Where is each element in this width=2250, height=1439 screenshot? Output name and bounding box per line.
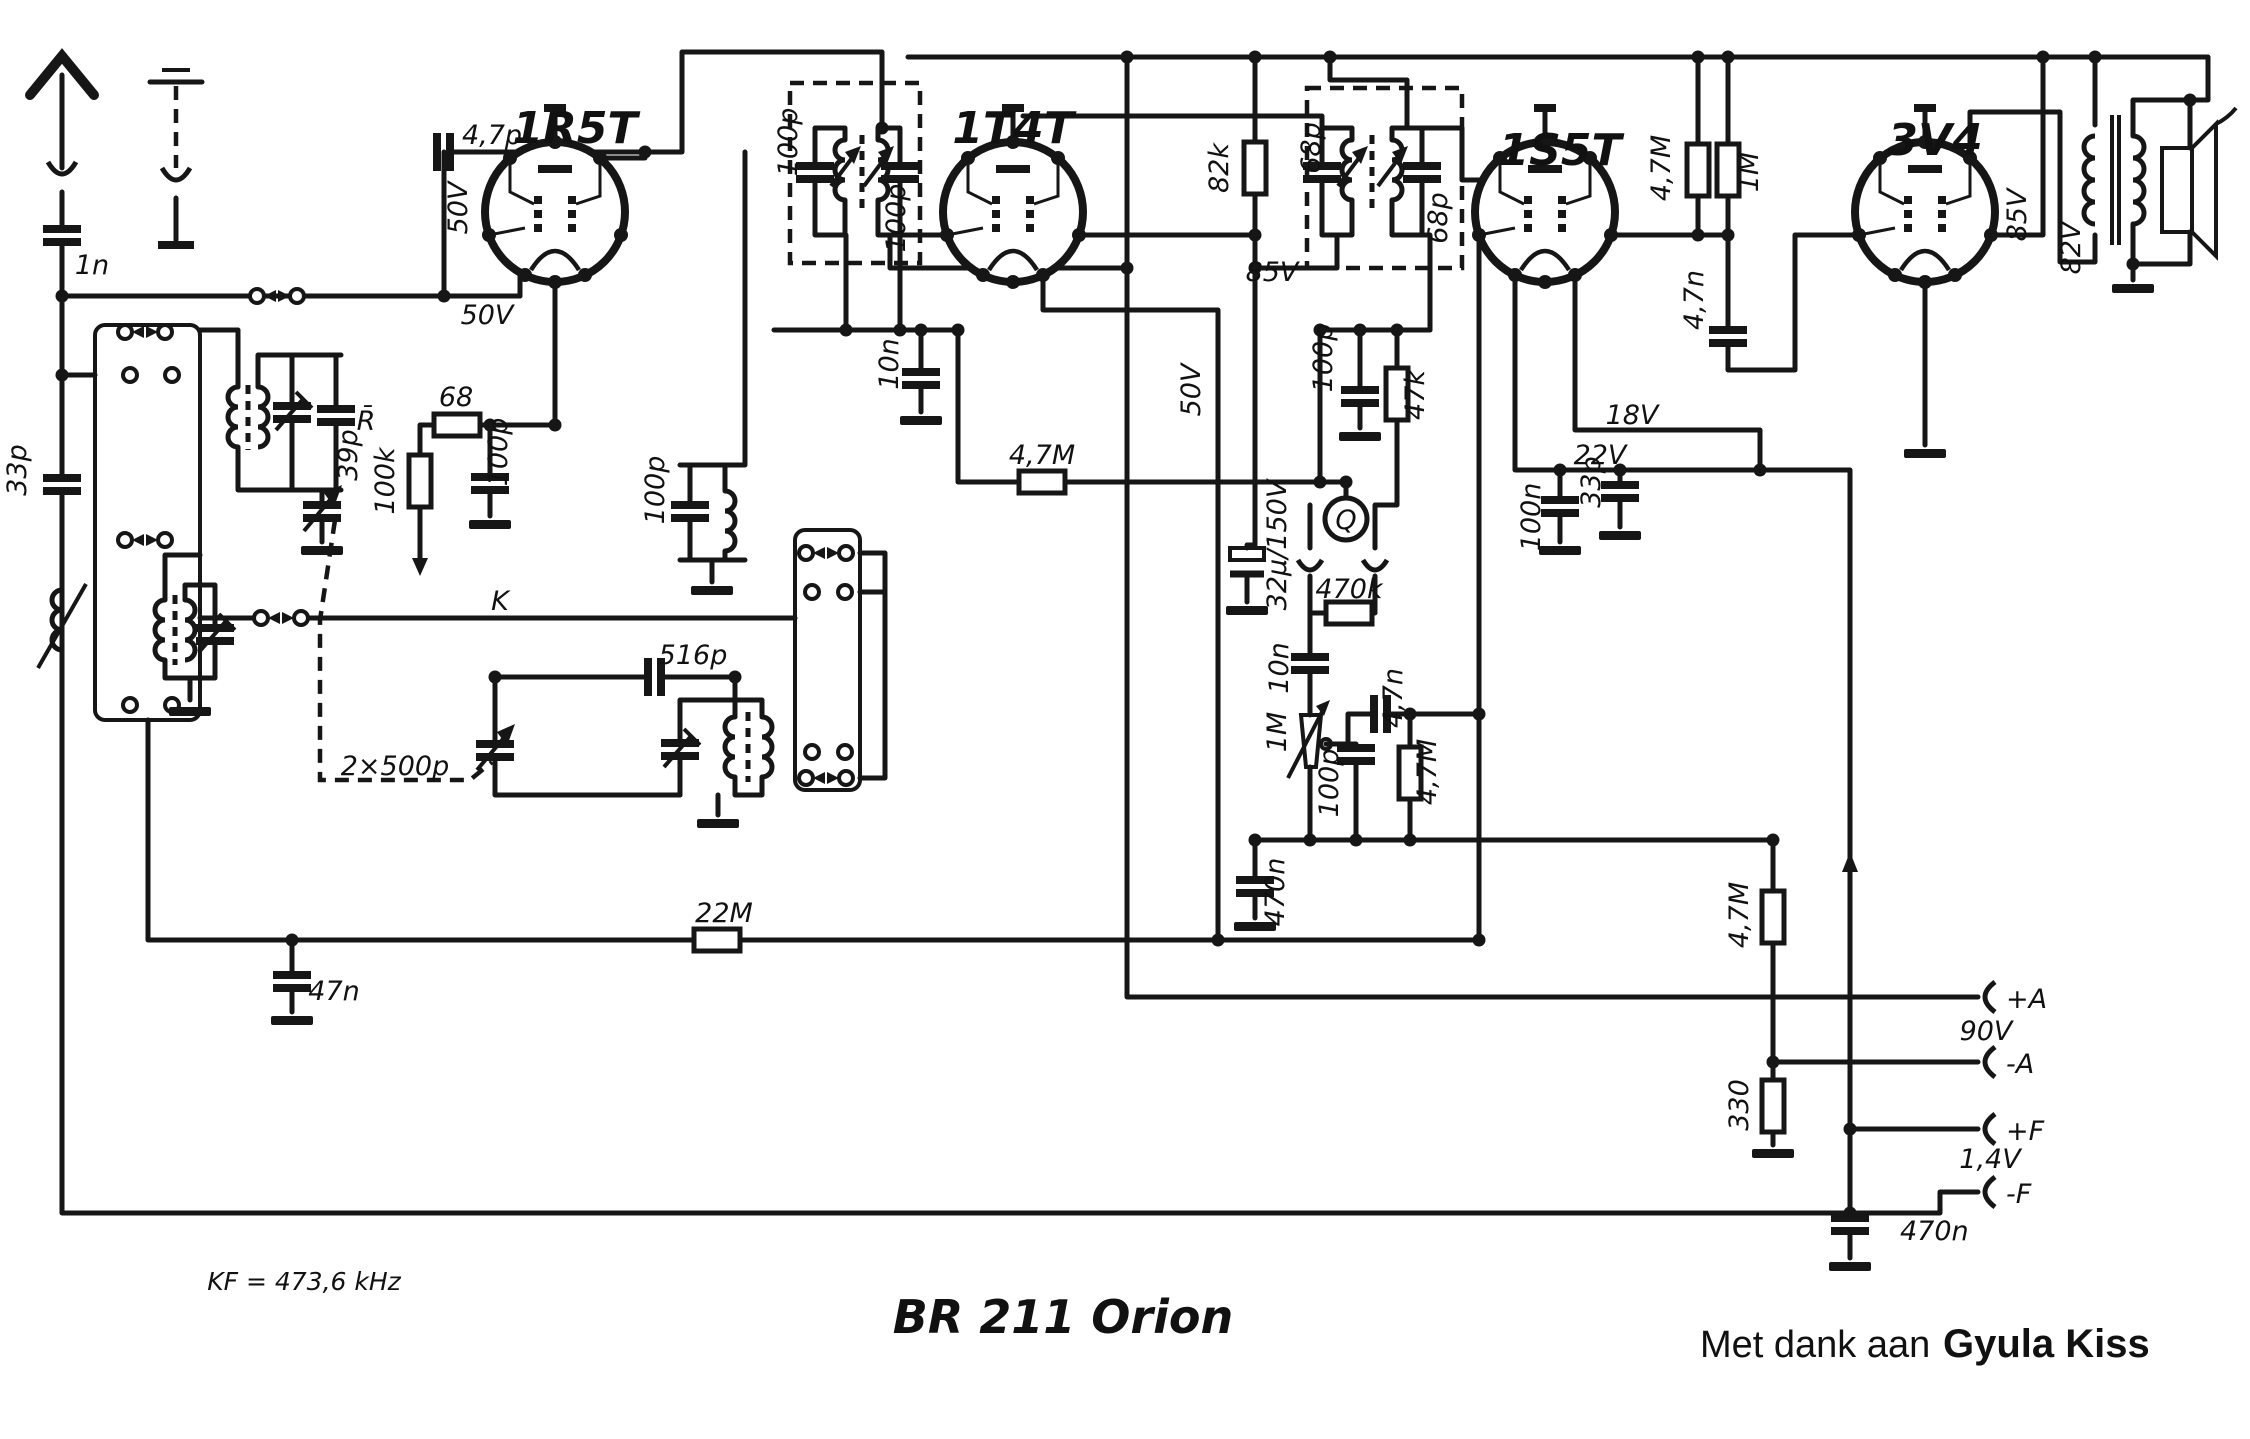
cap-4p7n-out-symbol: [1709, 330, 1747, 343]
output-transformer-icon: [2084, 115, 2144, 245]
credit-name: Gyula Kiss: [1943, 1322, 2150, 1366]
label-cap-470n-af: 470n: [1260, 858, 1291, 927]
label-cap-100p-af: 100p: [1314, 749, 1345, 818]
label-res-470k: 470k: [1315, 574, 1384, 605]
label-cap-100p-if1a: 100p: [773, 108, 804, 177]
label-tube-1s5t: 1S5T: [1499, 125, 1625, 176]
tuning-gang-link: [320, 520, 492, 780]
terminal-minus-f-icon[interactable]: [1985, 1177, 1995, 1207]
rf-transformer-icon: [228, 385, 268, 450]
cap-47n-symbol: [273, 975, 311, 988]
label-gang: 2×500p: [341, 751, 449, 782]
label-terminal-minus-a: -A: [2006, 1049, 2034, 1080]
schematic-canvas: 4,7p 1R5T 50V 50V 1n 33p 39p 68 100k 100…: [0, 0, 2250, 1439]
label-if-note: KF = 473,6 kHz: [207, 1267, 401, 1296]
resistor-22M-symbol: [694, 929, 740, 951]
if2-wires: [1255, 128, 1498, 330]
terminal-minus-a-icon[interactable]: [1985, 1047, 1995, 1077]
label-cap-100p-if1b: 100p: [881, 184, 912, 253]
resistor-470k-symbol: [1326, 602, 1372, 624]
label-cap-33p-ant: 33p: [2, 444, 33, 496]
ground-icon: [691, 586, 733, 595]
cap-68p-b-symbol: [1403, 166, 1441, 179]
resistor-82k-symbol: [1244, 142, 1266, 194]
cap-10n-if-symbol: [902, 372, 940, 385]
label-res-82k: 82k: [1204, 142, 1235, 193]
resistor-330-symbol: [1762, 1080, 1784, 1132]
terminal-plus-a-icon[interactable]: [1985, 982, 1995, 1012]
switch-contact[interactable]: [838, 745, 852, 759]
switch-contact[interactable]: [123, 698, 137, 712]
switch-contact[interactable]: [165, 368, 179, 382]
phone-jack-icon[interactable]: [1363, 560, 1387, 570]
switch-contact-pair[interactable]: [254, 611, 308, 625]
padder-transformer-icon: [725, 712, 772, 782]
resistor-68-symbol: [434, 414, 480, 436]
terminal-plus-f-icon[interactable]: [1985, 1114, 1995, 1144]
label-res-4p7M-ps: 4,7M: [1724, 882, 1755, 948]
label-18v: 18V: [1606, 400, 1661, 431]
label-terminal-plus-a: +A: [2006, 984, 2047, 1015]
label-cap-100p-det: 100p: [1308, 324, 1339, 393]
label-cap-68p-a: 68p: [1296, 122, 1327, 174]
band-switch-1[interactable]: [95, 325, 200, 720]
cap-39p-symbol: [317, 409, 355, 422]
cap-100p-det-symbol: [1341, 390, 1379, 403]
label-cap-33p-af: 33p: [1576, 456, 1607, 508]
label-res-47k: 47k: [1400, 369, 1431, 420]
label-cap-1n: 1n: [75, 250, 109, 281]
cap-100p-osc-symbol: [671, 505, 709, 518]
switch-contact[interactable]: [805, 585, 819, 599]
cap-470n-ps-symbol: [1831, 1218, 1869, 1231]
osc-transformer-icon: [155, 595, 195, 665]
ground-icon: [900, 416, 942, 425]
label-pot-1M: 1M: [1262, 712, 1293, 752]
phone-jack-icon[interactable]: [1298, 560, 1322, 570]
label-85v-a: 85V: [1246, 257, 1301, 288]
label-cap-470n-ps: 470n: [1900, 1216, 1969, 1247]
switch-contact-pair[interactable]: [118, 325, 172, 339]
speaker-icon: [2162, 108, 2236, 256]
label-k: K: [491, 586, 511, 617]
label-layer: 4,7p 1R5T 50V 50V 1n 33p 39p 68 100k 100…: [2, 103, 2150, 1366]
cap-33p-symbol: [43, 478, 81, 491]
label-cap-4p7n-af: 4,7n: [1378, 668, 1409, 728]
ground-icon: [1752, 1149, 1794, 1158]
label-cap-100n: 100n: [1516, 483, 1547, 552]
ground-icon: [697, 819, 739, 828]
cap-1n-symbol: [43, 229, 81, 242]
label-50v-b: 50V: [461, 300, 516, 331]
label-res-1M-plate: 1M: [1734, 152, 1765, 192]
ground-icon: [1829, 1262, 1871, 1271]
label-cap-100p-t1: 100p: [483, 418, 514, 487]
page-title: BR 211 Orion: [893, 1290, 1233, 1344]
switch-contact-pair[interactable]: [118, 533, 172, 547]
label-cap-68p-b: 68p: [1423, 192, 1454, 244]
label-cap-4p7n-out: 4,7n: [1679, 270, 1710, 330]
osc-tank-coil-icon: [725, 491, 735, 551]
label-q: Q: [1335, 505, 1356, 536]
cap-10n-det-symbol: [1291, 657, 1329, 670]
label-50v-c: 50V: [1176, 361, 1207, 416]
label-cap-516p: 516p: [659, 640, 728, 671]
filament-taps: [1515, 275, 1850, 1213]
label-res-330: 330: [1724, 1079, 1755, 1131]
label-res-68: 68: [439, 382, 473, 413]
label-1p4v: 1,4V: [1959, 1144, 2023, 1175]
label-82v: 82V: [2056, 219, 2087, 274]
ground-icon: [169, 707, 211, 716]
label-res-4p7M-plate: 4,7M: [1646, 135, 1677, 201]
label-cap-32u: 32µ/150V: [1262, 477, 1293, 610]
component-layer: [30, 56, 2236, 1271]
switch-contact[interactable]: [123, 368, 137, 382]
schematic-page: 4,7p 1R5T 50V 50V 1n 33p 39p 68 100k 100…: [0, 0, 2250, 1439]
switch2-stubs: [860, 553, 885, 778]
electrolytic-32u-symbol: [1230, 548, 1264, 574]
label-cap-47n: 47n: [308, 976, 359, 1007]
ground-icon: [1904, 449, 1946, 458]
switch-contact-pair[interactable]: [799, 771, 853, 785]
resistor-4p7M-plate-symbol: [1687, 144, 1709, 196]
af-plate-wires: [1611, 57, 1859, 370]
label-res-4p7M-avc: 4,7M: [1009, 440, 1075, 471]
label-terminal-minus-f: -F: [2006, 1179, 2032, 1210]
label-cap-10n-if: 10n: [874, 338, 905, 389]
resistor-4p7M-avc-symbol: [1019, 471, 1065, 493]
label-res-100k: 100k: [370, 446, 401, 515]
ground-icon: [301, 546, 343, 555]
resistor-4p7M-ps-symbol: [1762, 891, 1784, 943]
resistor-100k-symbol: [409, 455, 431, 507]
label-terminal-plus-f: +F: [2006, 1116, 2045, 1147]
switch-contact-pair[interactable]: [799, 546, 853, 560]
label-res-4p7M-af: 4,7M: [1412, 739, 1443, 805]
label-90v: 90V: [1960, 1016, 2015, 1047]
label-tube-3v4: 3V4: [1887, 115, 1982, 166]
label-res-22M: 22M: [695, 898, 753, 929]
ground-icon: [271, 1016, 313, 1025]
switch-contact[interactable]: [838, 585, 852, 599]
ground-icon: [1339, 432, 1381, 441]
ground-icon: [469, 520, 511, 529]
switch-contact[interactable]: [805, 745, 819, 759]
label-cap-10n-det: 10n: [1264, 642, 1295, 693]
label-50v-a: 50V: [443, 179, 474, 234]
label-tube-1t4t: 1T4T: [952, 103, 1076, 154]
ground-icon: [1599, 531, 1641, 540]
screen-wires: [1247, 57, 1255, 602]
label-r-bar: R̄: [357, 405, 376, 437]
label-cap-100p-osc: 100p: [640, 456, 671, 525]
label-tube-1r5t: 1R5T: [512, 103, 640, 154]
ground-icon: [2112, 284, 2154, 293]
label-85v-b: 85V: [2002, 186, 2033, 241]
credit-prefix: Met dank aan: [1700, 1324, 1930, 1366]
